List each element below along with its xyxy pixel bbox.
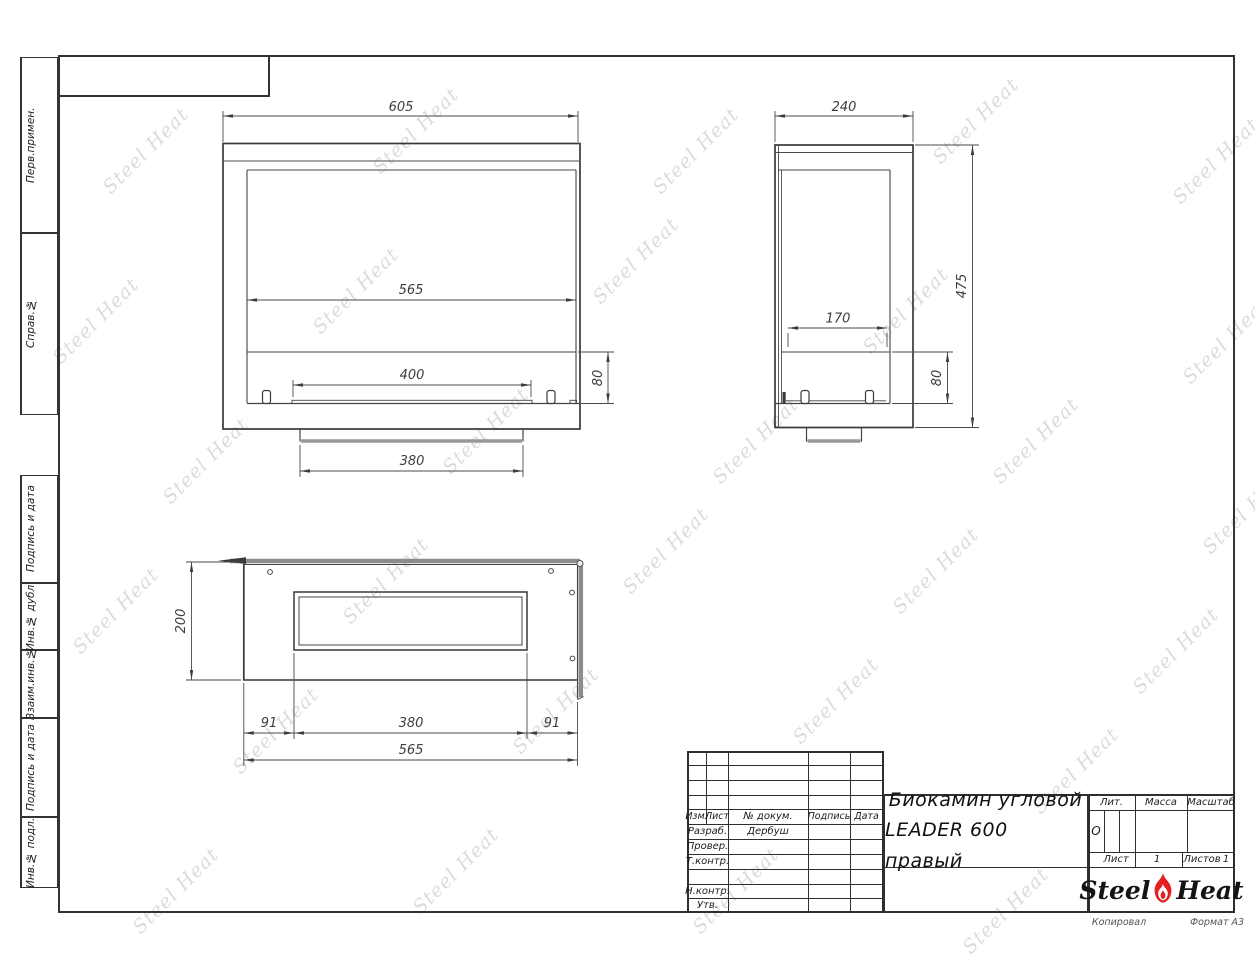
row-nkontr-label: Н.контр. (687, 884, 728, 898)
margin-label: Инв.№ подл. (21, 818, 40, 887)
margin-label: Взаим.инв.№ (21, 651, 40, 717)
margin-box-perv-primen: Перв.примен. (20, 57, 58, 233)
sheet-value: 1 (1140, 852, 1174, 867)
margin-label: Подпись и дата (21, 476, 40, 582)
row-razrab-label: Разраб. (687, 824, 728, 839)
row-utv-label: Утв. (687, 898, 728, 913)
header-sign: Подпись (808, 809, 850, 824)
document-title-line2: LEADER 600 правый (885, 815, 1086, 876)
header-date: Дата (850, 809, 883, 824)
document-title: Биокамин угловой LEADER 600 правый (885, 796, 1086, 865)
row-empty-label (687, 869, 728, 884)
margin-box-inv-podl: Инв.№ подл. (20, 817, 58, 888)
document-title-line1: Биокамин угловой (889, 785, 1082, 815)
mass-header: Масса (1135, 794, 1187, 810)
sheets-label: Листов (1183, 852, 1221, 867)
header-doc: № докум. (728, 809, 808, 824)
margin-label: Справ.№ (21, 234, 40, 414)
lit-value: О (1088, 810, 1104, 852)
margin-box-vzam-inv: Взаим.инв.№ (20, 650, 58, 718)
row-tkontr-label: Т.контр. (687, 854, 728, 869)
company-logo: Steel Heat (1089, 868, 1234, 912)
copied-label: Копировал (1069, 915, 1169, 929)
margin-label: Инв.№ дубл. (21, 584, 40, 649)
scale-header: Масштаб (1187, 794, 1235, 810)
lit-header: Лит. (1088, 794, 1135, 810)
margin-box-podpis-data-1: Подпись и дата (20, 475, 58, 583)
margin-box-podpis-data-2: Подпись и дата (20, 718, 58, 817)
margin-label: Подпись и дата (21, 719, 40, 816)
margin-label: Перв.примен. (21, 58, 40, 232)
header-list: Лист (706, 809, 728, 824)
format-label: Формат А3 (1167, 915, 1255, 929)
row-razrab-value: Дербуш (728, 824, 808, 839)
flame-icon (1151, 872, 1175, 908)
sheets-value: 1 (1219, 852, 1233, 867)
margin-box-sprav-no: Справ.№ (20, 233, 58, 415)
sheet-label: Лист (1092, 852, 1140, 867)
logo-heat-text: Heat (1176, 876, 1243, 905)
row-prover-label: Провер. (687, 839, 728, 854)
top-left-stamp-box (58, 55, 270, 97)
logo-steel-text: Steel (1079, 876, 1150, 905)
header-izm: Изм. (687, 809, 706, 824)
margin-box-inv-dubl: Инв.№ дубл. (20, 583, 58, 650)
sheet-background: { "sheet": { "copied_label": "Копировал"… (0, 0, 1255, 970)
